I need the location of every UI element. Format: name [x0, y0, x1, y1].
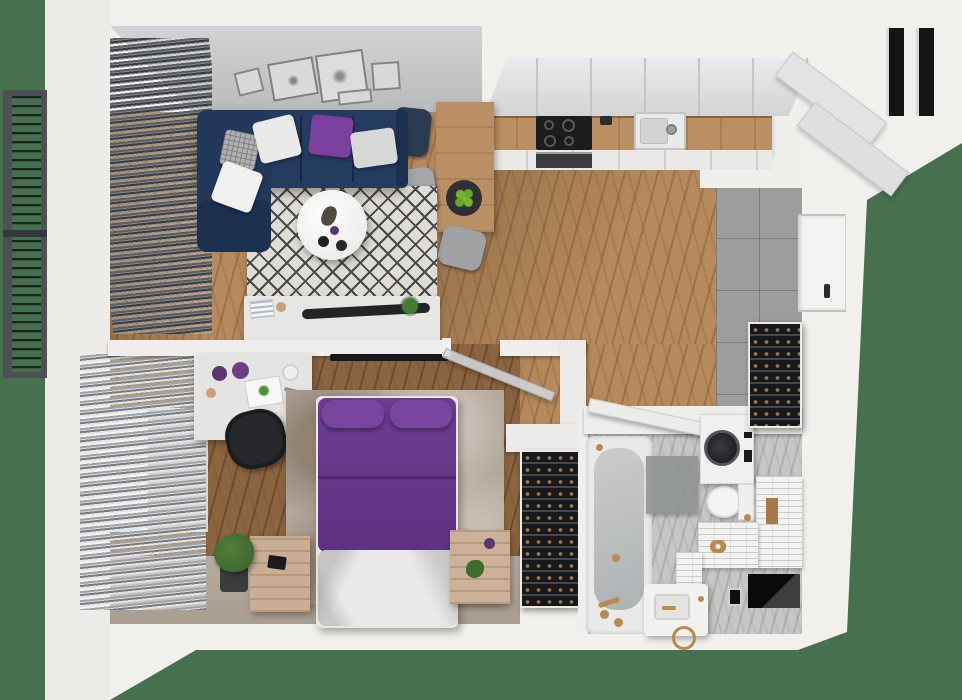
- entry-door-handle: [824, 284, 830, 298]
- hallway-storage-rack: [748, 322, 802, 428]
- entry-hall: [0, 0, 962, 700]
- facade-slit-window-1: [886, 28, 904, 116]
- entry-door: [798, 214, 846, 312]
- facade-slit-window-2: [916, 28, 934, 116]
- floor-plan-scene: [0, 0, 962, 700]
